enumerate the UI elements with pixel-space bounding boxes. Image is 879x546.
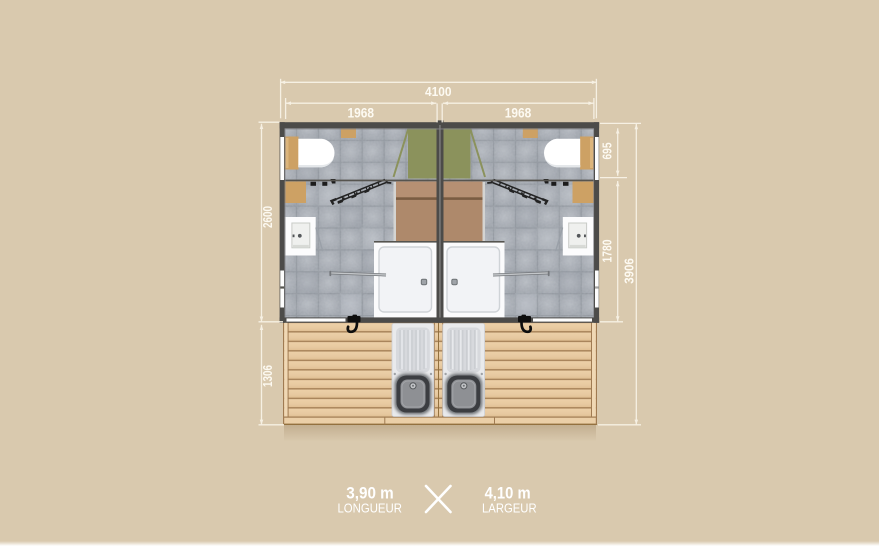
svg-text:2600: 2600	[260, 206, 275, 228]
svg-text:695: 695	[600, 143, 615, 160]
svg-text:3906: 3906	[621, 258, 636, 284]
svg-text:1968: 1968	[505, 105, 532, 121]
svg-text:1968: 1968	[347, 105, 374, 121]
svg-text:LARGEUR: LARGEUR	[482, 502, 537, 516]
svg-text:LONGUEUR: LONGUEUR	[337, 502, 402, 516]
svg-text:1306: 1306	[260, 365, 275, 387]
svg-text:1780: 1780	[600, 240, 615, 263]
svg-text:4100: 4100	[425, 84, 452, 99]
svg-text:3,90 m: 3,90 m	[346, 483, 394, 502]
svg-text:4,10 m: 4,10 m	[485, 483, 531, 502]
